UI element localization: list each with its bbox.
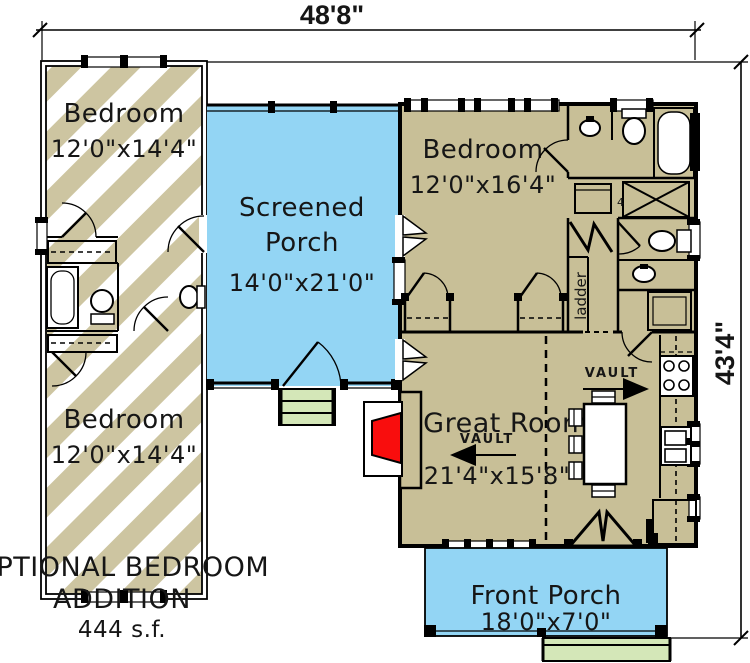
toilet-master-bath bbox=[622, 109, 646, 144]
porch-steps bbox=[279, 389, 335, 425]
front-porch-size: 18'0"x7'0" bbox=[481, 608, 612, 636]
caption-line-1: OPTIONAL BEDROOM bbox=[0, 552, 269, 583]
caption-line-2: ADDITION bbox=[53, 584, 191, 615]
firebox bbox=[372, 413, 401, 463]
right-dimension-label: 43'4" bbox=[710, 321, 740, 385]
vault-right-label: VAULT bbox=[585, 366, 639, 381]
main-house: Bedroom 12'0"x16'4" bbox=[364, 98, 700, 553]
stove bbox=[660, 356, 693, 396]
floor-plan-svg: 48'8" 43'4" bbox=[0, 0, 750, 663]
wall-post bbox=[648, 533, 658, 545]
front-steps bbox=[543, 638, 670, 661]
fireplace bbox=[364, 402, 402, 476]
caption-line-3: 444 s.f. bbox=[78, 617, 166, 643]
ladder-label: ladder bbox=[572, 271, 590, 320]
front-porch-name: Front Porch bbox=[470, 581, 621, 611]
great-room-size: 21'4"x15'8" bbox=[424, 462, 571, 490]
screened-porch-name-1: Screened bbox=[239, 193, 365, 223]
closet-mark-label: 4 bbox=[617, 196, 624, 209]
vault-left-label: VAULT bbox=[460, 432, 514, 447]
chimney-breast bbox=[400, 392, 421, 488]
addition-bedroom-top-size: 12'0"x14'4" bbox=[51, 135, 198, 163]
bathtub-master-bath bbox=[654, 108, 694, 178]
addition-left-window bbox=[35, 217, 48, 255]
dimension-top: 48'8" bbox=[33, 0, 704, 60]
bathtub-addition bbox=[47, 267, 78, 328]
addition-bedroom-top-name: Bedroom bbox=[63, 99, 184, 129]
addition-bedroom-bottom-name: Bedroom bbox=[63, 405, 184, 435]
screened-porch: Screened Porch 14'0"x21'0" bbox=[206, 101, 400, 425]
addition-top-window bbox=[81, 55, 167, 68]
screened-porch-size: 14'0"x21'0" bbox=[229, 269, 376, 297]
main-bedroom-name: Bedroom bbox=[422, 135, 543, 165]
optional-addition-building: Bedroom 12'0"x14'4" Bedroom 12'0"x14'4" bbox=[35, 55, 209, 603]
main-bedroom-size: 12'0"x16'4" bbox=[410, 171, 557, 199]
bedroom-top-windows bbox=[404, 98, 559, 112]
sink-addition bbox=[91, 290, 114, 324]
floor-plan-page: 48'8" 43'4" bbox=[0, 0, 750, 663]
screened-porch-name-2: Porch bbox=[265, 228, 339, 258]
front-porch: Front Porch 18'0"x7'0" bbox=[424, 548, 670, 661]
top-dimension-label: 48'8" bbox=[300, 0, 364, 30]
kitchen-sink bbox=[661, 427, 691, 465]
toilet-addition bbox=[180, 286, 205, 308]
toilet-hall-bath bbox=[649, 230, 691, 252]
addition-bedroom-bottom-size: 12'0"x14'4" bbox=[51, 441, 198, 469]
kitchen-window-2 bbox=[687, 494, 700, 522]
